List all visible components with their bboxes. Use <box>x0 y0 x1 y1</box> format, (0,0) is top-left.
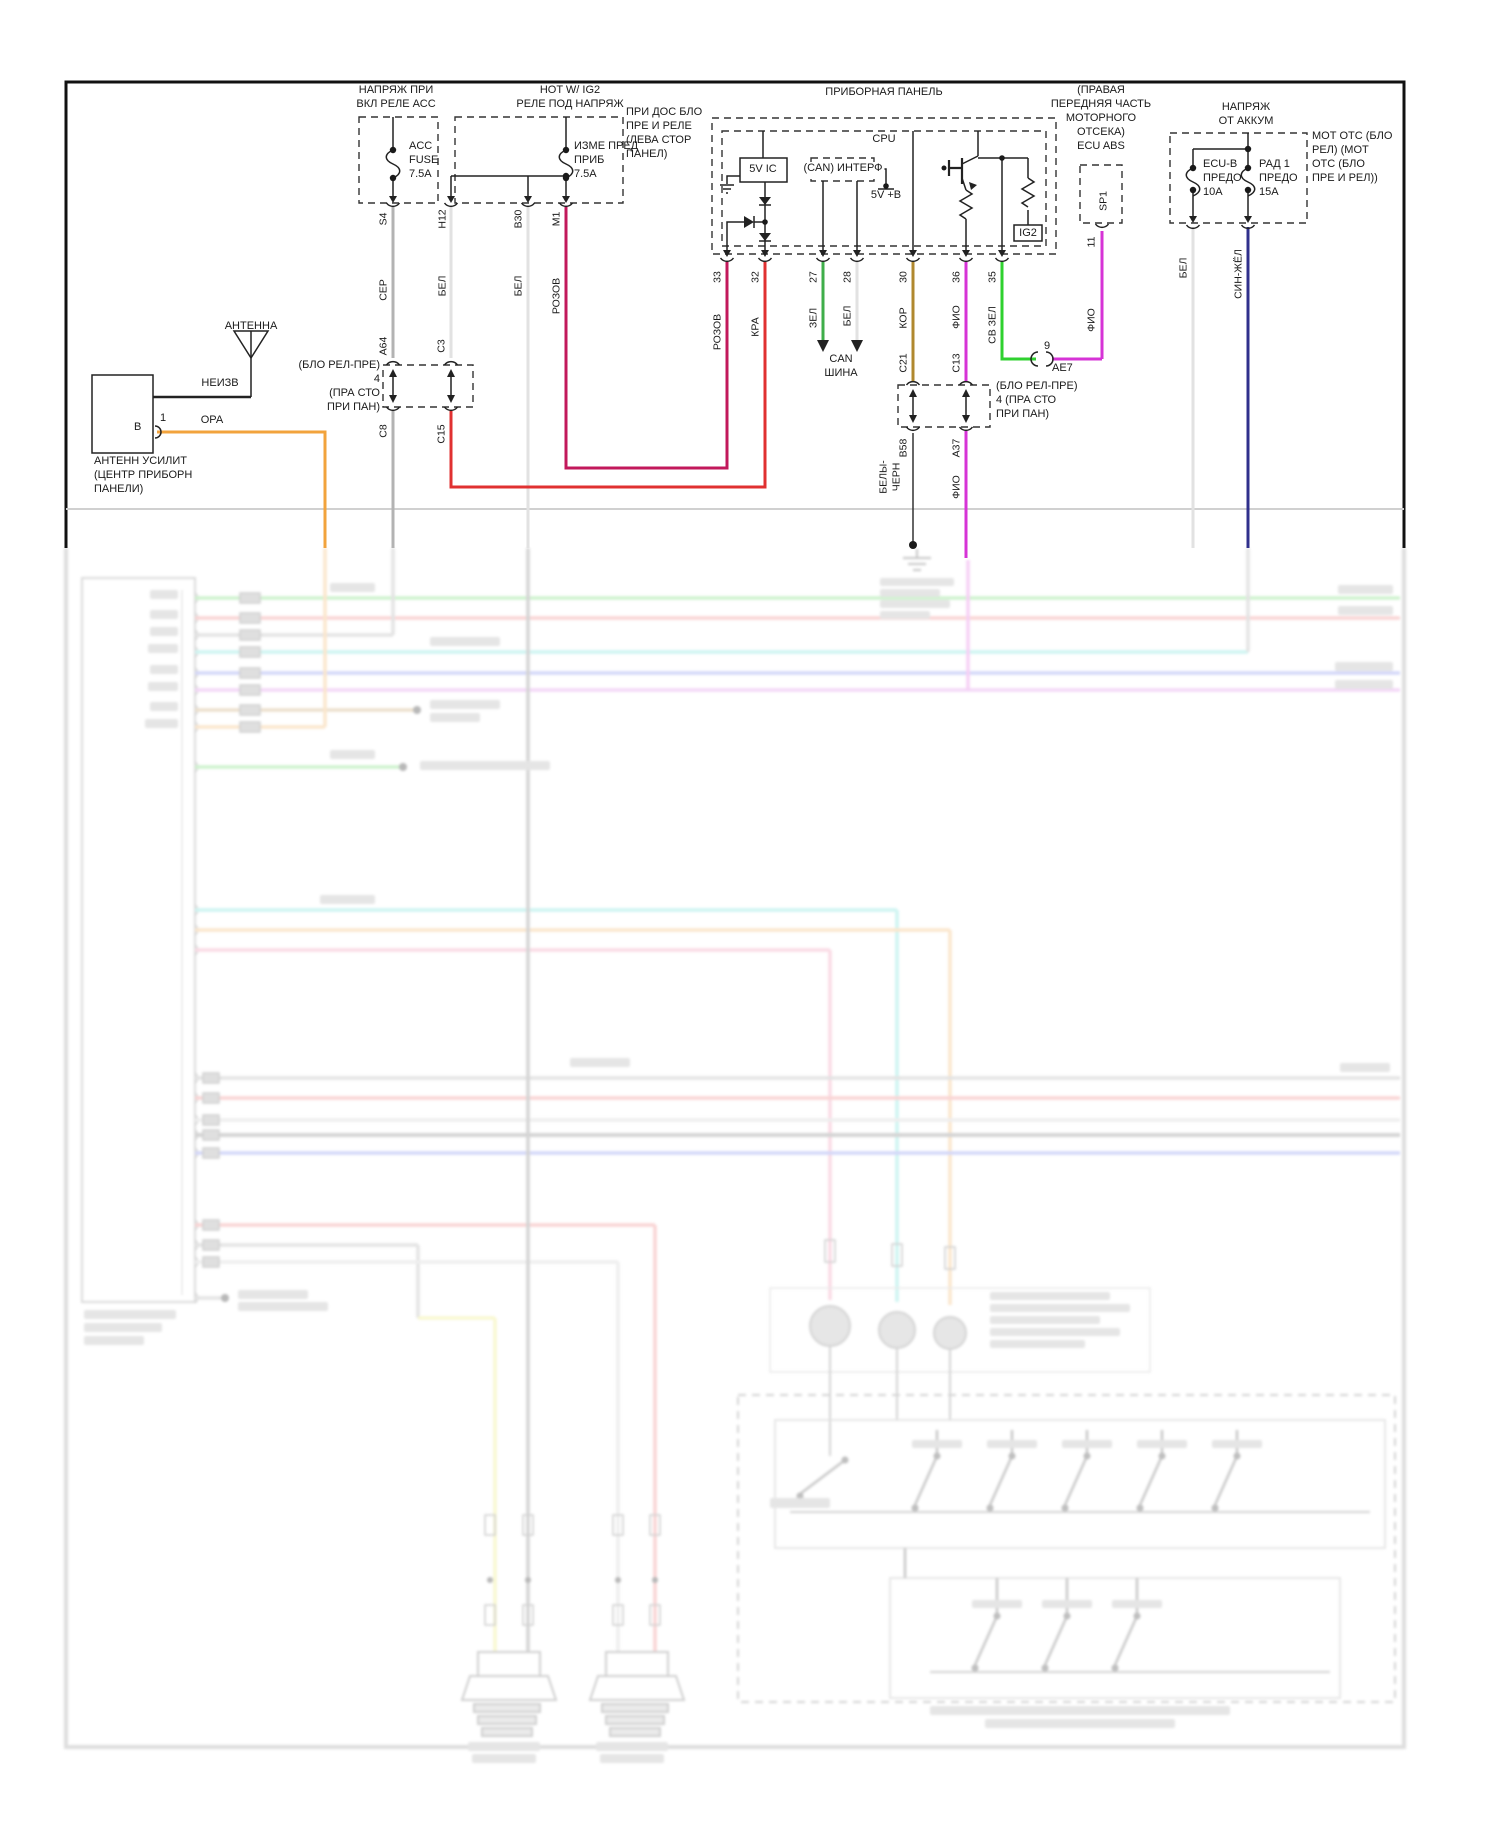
ecub-fuse-label: ECU-B ПРЕДО 10A <box>1203 158 1242 200</box>
wire-label-bel-batt: БЕЛ <box>1177 258 1190 279</box>
pin-h12: H12 <box>436 209 449 228</box>
wire-svzel <box>1002 262 1036 359</box>
neizv-wire-label: НЕИЗВ <box>201 377 238 391</box>
wire-label-fio-sp1: ФИО <box>1085 308 1098 332</box>
pin-33: 33 <box>711 271 724 283</box>
junction-dots <box>390 146 1251 549</box>
wire-label-zel: ЗЕЛ <box>807 308 820 328</box>
ora-wire-label: ОРА <box>201 414 224 428</box>
ig2-side-note: ПРИ ДОС БЛО ПРЕ И РЕЛЕ (ЛЕВА СТОР ПАНЕЛ) <box>626 106 702 162</box>
pin-28: 28 <box>841 271 854 283</box>
wire-label-fio-36: ФИО <box>950 305 963 329</box>
wire-label-bel-b30: БЕЛ <box>512 276 525 297</box>
wire-label-rozov-m1: РОЗОВ <box>550 278 563 314</box>
ig2-box-title: HOT W/ IG2 РЕЛЕ ПОД НАПРЯЖ <box>516 84 623 112</box>
pin-36: 36 <box>950 271 963 283</box>
ig2-pin-label: IG2 <box>1019 227 1037 241</box>
wire-label-sinzhel: СИН-ЖЁЛ <box>1232 249 1245 299</box>
panel-title: ПРИБОРНАЯ ПАНЕЛЬ <box>825 86 942 100</box>
pin-m1: M1 <box>550 212 563 227</box>
pin-c3: C3 <box>435 339 448 352</box>
connector-mid-label: (БЛО РЕЛ-ПРЕ) 4 (ПРА СТО ПРИ ПАН) <box>996 380 1078 422</box>
acc-fuse-label: ACC FUSE 7.5A <box>409 140 438 182</box>
connector-mid-box <box>898 385 990 427</box>
antenna-label: АНТЕННА <box>225 320 278 334</box>
5v-b-label: 5V +B <box>871 189 901 203</box>
wire-label-svzel: СВ ЗЕЛ <box>986 306 999 344</box>
page-border <box>66 82 1404 548</box>
pin-27: 27 <box>807 271 820 283</box>
wire-fio-sp1 <box>1052 231 1102 359</box>
wire-label-bel-28: БЕЛ <box>841 306 854 327</box>
pin-c8: C8 <box>377 424 390 437</box>
wire-label-kor: КОР <box>897 307 910 328</box>
wire-label-kra: КРА <box>749 317 762 336</box>
pin-c13: C13 <box>950 353 963 372</box>
wire-kra <box>451 262 765 487</box>
pin-35: 35 <box>986 271 999 283</box>
cpu-label: CPU <box>872 133 895 147</box>
pin-32: 32 <box>749 271 762 283</box>
wire-label-rozov-33: РОЗОВ <box>711 314 724 350</box>
ae7-label: АЕ7 <box>1052 362 1073 376</box>
wiring-diagram-page: НАПРЯЖ ПРИ ВКЛ РЕЛЕ АСС ACC FUSE 7.5A HO… <box>0 0 1500 1828</box>
wire-rozov <box>566 207 727 468</box>
connector-left-label: (БЛО РЕЛ-ПРЕ) 4 (ПРА СТО ПРИ ПАН) <box>280 359 380 415</box>
pin-sp1: SP1 <box>1097 191 1110 211</box>
can-interface-label: (CAN) ИНТЕРФ <box>801 162 884 176</box>
rad1-fuse-label: РАД 1 ПРЕДО 15A <box>1259 158 1298 200</box>
wire-label-fio-a37: ФИО <box>950 475 963 499</box>
wire-label-belychern: БЕЛЫ- ЧЕРН <box>878 460 905 494</box>
pin-a64: A64 <box>377 337 390 356</box>
pin-11: 11 <box>1085 237 1098 248</box>
pin-c21: C21 <box>897 353 910 372</box>
battery-side-note: МОТ ОТС (БЛО РЕЛ) (МОТ ОТС (БЛО ПРЕ И РЕ… <box>1312 130 1392 186</box>
battery-title: НАПРЯЖ ОТ АККУМ <box>1219 101 1274 129</box>
can-bus-label: CAN ШИНА <box>824 353 857 381</box>
pin-b30: B30 <box>512 210 525 229</box>
ic-5v-label: 5V IC <box>749 163 777 177</box>
pin-s4: S4 <box>377 213 390 226</box>
wire-label-bel-h12: БЕЛ <box>436 276 449 297</box>
connector-left-box <box>383 365 473 407</box>
pin-c15: C15 <box>435 424 448 443</box>
pin-30: 30 <box>897 271 910 283</box>
wire-label-ser: СЕР <box>377 279 390 301</box>
acc-box-title: НАПРЯЖ ПРИ ВКЛ РЕЛЕ АСС <box>356 84 435 112</box>
amp-pin-1: 1 <box>160 412 166 426</box>
ecu-abs-title: (ПРАВАЯ ПЕРЕДНЯЯ ЧАСТЬ МОТОРНОГО ОТСЕКА)… <box>1051 84 1151 154</box>
pin-a37: A37 <box>950 439 963 458</box>
ae7-pin-9: 9 <box>1044 340 1050 354</box>
amp-pin-b: В <box>134 421 141 435</box>
pin-b58: B58 <box>897 439 910 458</box>
amp-caption: АНТЕНН УСИЛИТ (ЦЕНТР ПРИБОРН ПАНЕЛИ) <box>94 455 192 497</box>
